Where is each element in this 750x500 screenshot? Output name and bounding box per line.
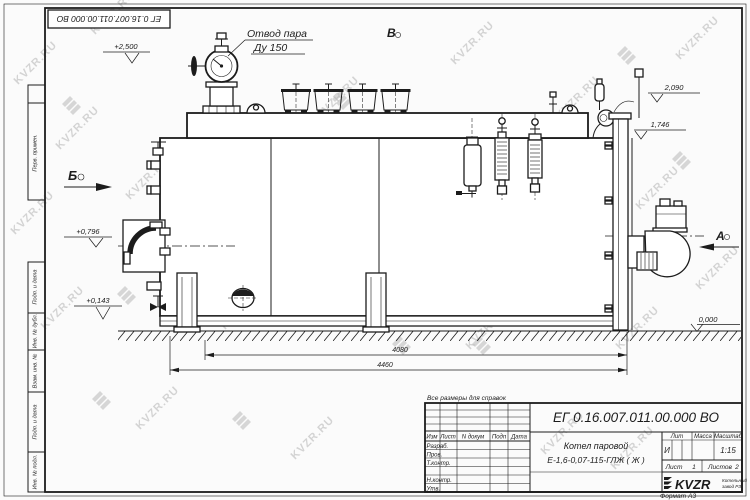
kvzr-logo-watermark-icon (92, 391, 111, 410)
col-header: Лист (439, 435, 455, 441)
fan-motor (637, 252, 657, 270)
signature-row-label: Пров. (427, 453, 443, 459)
lit-label: Лит (670, 434, 683, 440)
kvzr-logo-watermark-icon (617, 46, 636, 65)
elevation-value: 0,000 (699, 315, 719, 324)
signature-row-label: Утв. (426, 487, 441, 493)
view-letter: В (387, 26, 396, 40)
hatch-dome (381, 84, 411, 114)
kvzr-logo-watermark-icon (232, 411, 251, 430)
ground-line (118, 331, 741, 341)
watermark-text: KVZR.RU (289, 414, 337, 462)
kvzr-logo-watermark-icon (117, 286, 136, 305)
elevation-value: +2,500 (114, 42, 138, 51)
dimension-value: 4460 (377, 362, 393, 369)
col-header: Изм (426, 435, 437, 441)
elevation-mark: 2,090 (648, 83, 700, 102)
steam-outlet-valve (188, 33, 240, 113)
reference-note: Все размеры для справок (427, 394, 507, 402)
valve-handwheel (191, 56, 197, 76)
title-block: Все размеры для справок Изм Лист N докум… (425, 394, 747, 493)
product-designation: Е-1,6-0,07-115-ГЛЖ ( Ж ) (547, 455, 645, 465)
watermark-text: KVZR.RU (9, 189, 57, 237)
dimension-value: 4080 (392, 347, 408, 354)
sheet-value: 1 (692, 464, 696, 471)
drawing-sheet: KVZR.RU KVZR.RU KVZR.RU KVZR.RU KVZR.RU … (0, 0, 750, 500)
signature-row-label: Т.контр. (427, 461, 451, 467)
elevation-mark: +0,796 (64, 227, 112, 247)
upper-drum (187, 113, 588, 138)
format-note: Формат А3 (660, 493, 696, 500)
title-doc-number: ЕГ 0.16.007.011.00.000 ВО (553, 410, 719, 425)
mass-label: Масса (694, 434, 712, 440)
sheets-value: 2 (734, 464, 739, 471)
elevation-value: +0,143 (86, 296, 110, 305)
dimension-4080: 4080 (205, 347, 627, 357)
margin-label: Инв. № дубл. (33, 314, 39, 348)
lifting-lug (247, 104, 265, 113)
col-header: Подп (492, 435, 507, 441)
elevation-mark: +2,500 (103, 42, 150, 63)
level-probe-rod (549, 92, 557, 113)
margin-label: Перв. примен. (33, 134, 39, 171)
elevation-value: 2,090 (664, 83, 685, 92)
elevation-value: +0,796 (76, 227, 100, 236)
view-letter: А (715, 229, 725, 243)
watermark-text: KVZR.RU (449, 19, 497, 67)
support-leg (174, 273, 200, 332)
col-header: Дата (510, 435, 527, 441)
company-subtitle: завод РЗ (721, 484, 741, 489)
burner-front-box (123, 220, 170, 272)
callout-text: Отвод пара (247, 28, 307, 40)
company-logo: KVZR Котельный завод РЗ (664, 477, 747, 492)
watermark-text: KVZR.RU (694, 244, 742, 292)
elevation-mark: +0,143 (74, 296, 122, 319)
sheets-label: Листов (707, 464, 733, 471)
elevation-value: 1,746 (651, 120, 671, 129)
scale-value: 1:15 (720, 446, 736, 455)
margin-label: Подп. и дата (33, 404, 39, 439)
boiler-casing (160, 138, 625, 316)
boiler-drawing-canvas: KVZR.RU KVZR.RU KVZR.RU KVZR.RU KVZR.RU … (0, 0, 750, 500)
signature-row-label: Н.контр. (427, 478, 452, 484)
col-header: N докум (462, 435, 485, 441)
signature-row-label: Разраб. (427, 444, 449, 450)
company-subtitle: Котельный (722, 477, 747, 483)
margin-label: Подп. и дата (33, 269, 39, 304)
margin-label: Взам. инв. № (33, 354, 39, 389)
watermark-text: KVZR.RU (12, 39, 60, 87)
view-marker-v: В (387, 26, 401, 40)
sheet-label: Лист (665, 464, 683, 471)
view-marker-b: Б (64, 168, 112, 191)
margin-label: Инв. № подл. (33, 455, 39, 490)
flue-fan (628, 199, 690, 277)
lit-value: И (664, 446, 670, 455)
callout-text: Ду 150 (253, 42, 287, 54)
kvzr-logo-watermark-icon (62, 96, 81, 115)
company-name: KVZR (675, 477, 711, 492)
steam-outlet-callout: Отвод пара Ду 150 (228, 28, 313, 56)
elevation-mark: 1,746 (634, 120, 686, 139)
watermark-text: KVZR.RU (54, 104, 102, 152)
support-leg (363, 273, 389, 332)
scale-label: Масштаб (714, 434, 743, 440)
dimension-4460: 4460 (170, 362, 627, 372)
product-name: Котел паровой (564, 441, 629, 451)
view-marker-a: А (699, 229, 739, 251)
view-letter: Б (68, 168, 77, 183)
elevation-mark: 0,000 (691, 315, 740, 332)
watermark-text: KVZR.RU (674, 14, 722, 62)
watermark-text: KVZR.RU (134, 384, 182, 432)
hatch-dome (281, 84, 311, 114)
top-stamp-doc-number: ЕГ 0.16.007.011.00.000 ВО (56, 14, 161, 24)
